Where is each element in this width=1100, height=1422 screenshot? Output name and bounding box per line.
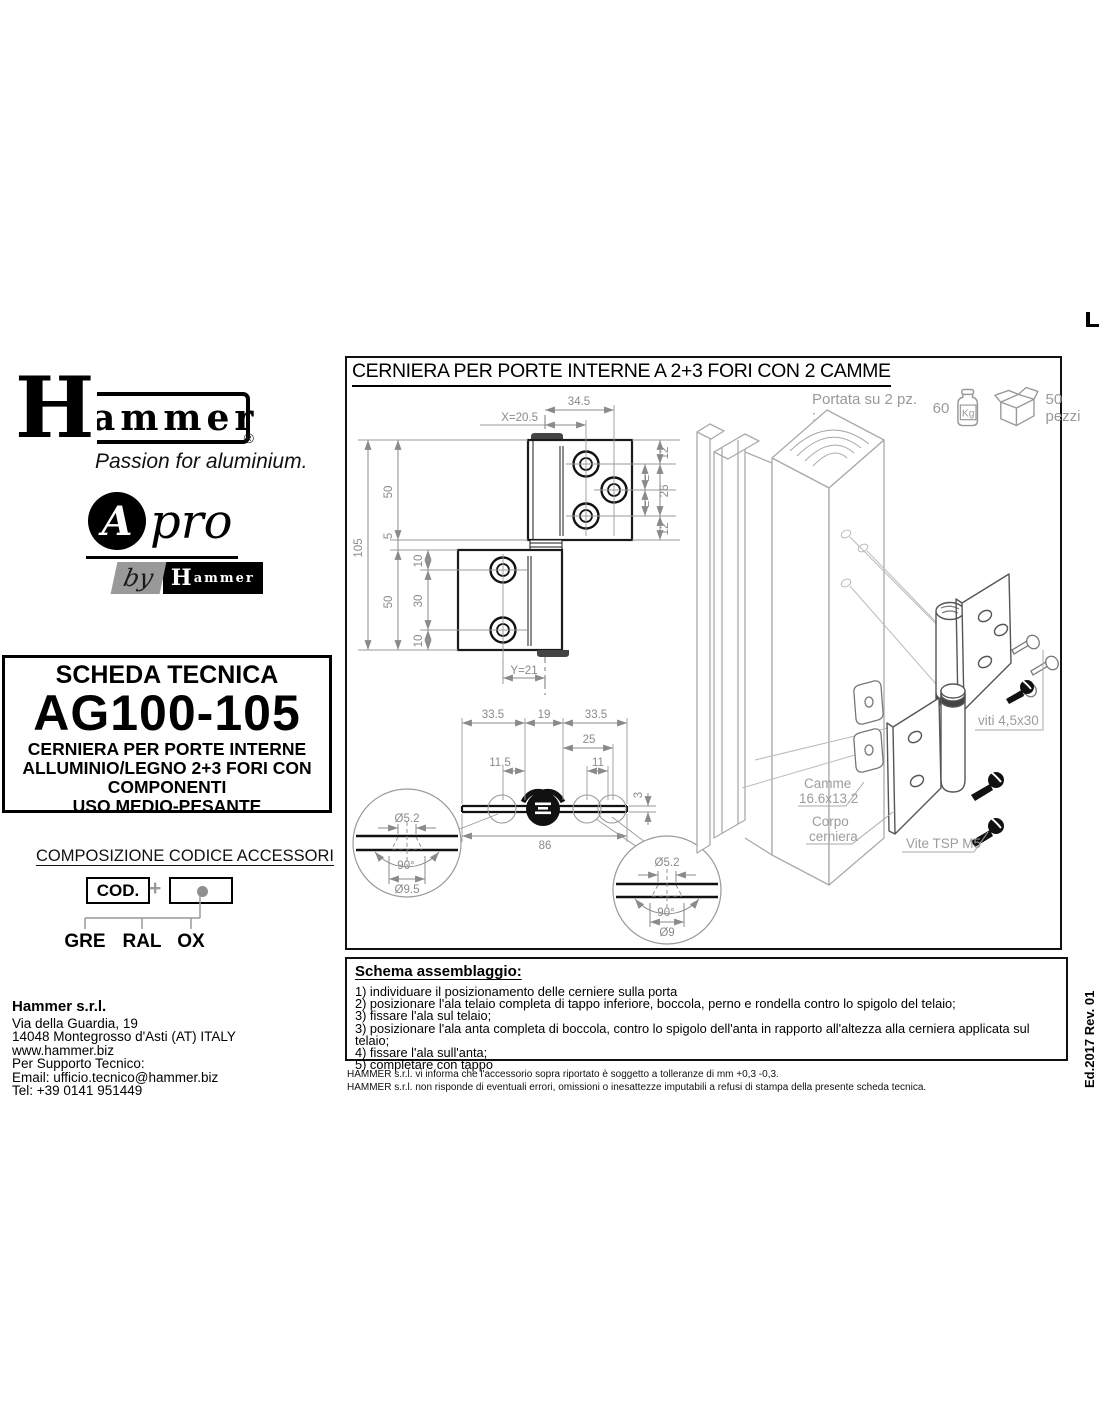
finish-option-ral: RAL (120, 931, 164, 953)
capacity-value: 60 (933, 400, 950, 417)
contact-block: Hammer s.r.l. Via della Guardia, 19 1404… (12, 1000, 236, 1098)
finish-box (169, 877, 233, 904)
assembly-title: Schema assemblaggio: (355, 963, 1058, 980)
contact-line: Per Supporto Tecnico: (12, 1057, 236, 1071)
company-name: Hammer s.r.l. (12, 1000, 236, 1014)
assembly-steps: 1) individuare il posizionamento delle c… (355, 986, 1058, 1071)
product-description: CERNIERA PER PORTE INTERNE ALLUMINIO/LEG… (5, 740, 329, 816)
apro-pro-text: pro (150, 498, 233, 546)
edition-revision: Ed.2017 Rev. 01 (1082, 956, 1097, 1088)
apro-by-badge: by H ammer (114, 562, 263, 594)
apro-underline (86, 556, 238, 559)
apro-a-icon: A (88, 492, 146, 550)
apro-mini-hammer: H ammer (163, 562, 263, 594)
code-composition-title: COMPOSIZIONE CODICE ACCESSORI (36, 847, 334, 866)
technical-drawing-frame (345, 356, 1062, 950)
finish-option-ox: OX (169, 931, 213, 953)
cod-box: COD. (86, 877, 150, 904)
tolerance-note: HAMMER s.r.l. vi informa che l'accessori… (347, 1069, 779, 1080)
drawing-title: CERNIERA PER PORTE INTERNE A 2+3 FORI CO… (352, 360, 891, 387)
hammer-logo: ammer ® H (10, 380, 262, 452)
capacity-info: Portata su 2 pz. : 60 Kg 50 pezzi (812, 385, 1100, 431)
product-code: AG100-105 (5, 690, 329, 738)
plus-sign: + (149, 877, 161, 901)
weight-icon: Kg (955, 388, 980, 428)
box-icon (993, 385, 1040, 431)
hammer-logo-h: H (12, 366, 97, 450)
apro-by-text: by (111, 562, 167, 594)
contact-line: Via della Guardia, 19 (12, 1017, 236, 1031)
errors-note: HAMMER s.r.l. non risponde di eventuali … (347, 1082, 926, 1093)
capacity-label: Portata su 2 pz. : (812, 391, 923, 425)
contact-line: www.hammer.biz (12, 1044, 236, 1058)
assembly-box: Schema assemblaggio: 1) individuare il p… (345, 957, 1068, 1061)
pack-quantity: 50 pezzi (1046, 391, 1100, 425)
contact-line: Email: ufficio.tecnico@hammer.biz (12, 1071, 236, 1085)
finish-dot-icon (197, 886, 208, 897)
contact-line: 14048 Montegrosso d'Asti (AT) ITALY (12, 1030, 236, 1044)
apro-logo: A pro by H ammer (86, 492, 246, 604)
crop-mark (1086, 312, 1099, 327)
tech-sheet-box: SCHEDA TECNICA AG100-105 CERNIERA PER PO… (2, 655, 332, 813)
datasheet-page: ammer ® H Passion for aluminium. A pro b… (0, 0, 1100, 1422)
brand-tagline: Passion for aluminium. (95, 450, 307, 474)
finish-option-gre: GRE (63, 931, 107, 953)
registered-mark: ® (244, 430, 254, 446)
capacity-unit: Kg (962, 408, 975, 419)
contact-line: Tel: +39 0141 951449 (12, 1084, 236, 1098)
assembly-step: 3) posizionare l'ala anta completa di bo… (355, 1023, 1058, 1047)
